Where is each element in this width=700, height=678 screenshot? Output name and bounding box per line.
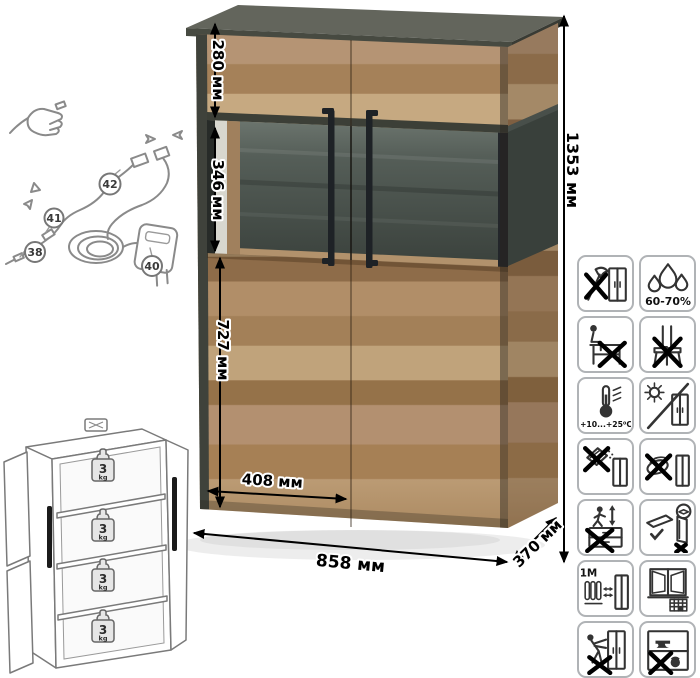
no-overload-icon [643,625,693,675]
load-schematic: 3 kg [0,415,192,678]
connect-arrow-icon [31,183,40,192]
connect-arrow-icon [146,135,155,143]
svg-text:60-70%: 60-70% [645,294,691,307]
care-icon-no-abrasive-cleaners [577,438,634,495]
care-icon-humidity-range: 60-70% [639,255,696,312]
dimension-height: 1353 мм [563,132,582,208]
transport-orientation-icon [643,503,693,553]
dimension-upper-height: 280 мм [209,39,227,100]
care-icon-heat-source-distance: ≥1М [577,560,634,617]
thermometer-icon: +10...+25⁰C [581,381,631,431]
care-icon-transport-flat-only [639,499,696,556]
care-icon-no-wet-cleaning [639,438,696,495]
care-icon-avoid-direct-sunlight [639,377,696,434]
care-icon-no-climbing [577,499,634,556]
svg-text:≥1М: ≥1М [581,567,597,579]
cabinet-front [196,34,508,528]
svg-text:+10...+25⁰C: +10...+25⁰C [581,419,631,428]
cable-coil [69,231,123,263]
care-icon-temperature-range: +10...+25⁰C [577,377,634,434]
left-door-handle [328,110,335,266]
wiring-diagram: 38 40 41 42 [0,95,200,295]
no-standing-icon [643,320,693,370]
bracket-detail [85,419,107,431]
svg-text:40: 40 [144,260,160,273]
schematic-left-handle [47,506,52,568]
sun-slash-icon [643,381,693,431]
care-icon-no-overloading [639,621,696,678]
water-drops-icon: 60-70% [643,259,693,309]
svg-text:42: 42 [102,178,117,191]
glass-display-section [207,120,508,267]
care-icon-ventilate-room [639,560,696,617]
radiator-distance-icon: ≥1М [581,564,631,614]
strip-connector [131,154,148,168]
connect-arrow-icon [24,200,32,209]
no-sitting-icon [581,320,631,370]
cabinet-rendering: 280 мм 346 мм 727 мм 408 мм 858 мм 370 м… [185,0,585,578]
care-icon-no-pushing [577,621,634,678]
plug-connector [154,147,169,160]
schematic-right-handle [172,477,177,551]
open-left-door-upper [4,452,30,566]
care-icon-no-sitting [577,316,634,373]
open-left-door-lower [7,561,33,673]
care-icons-grid: 60-70% +1 [577,255,696,678]
no-abrasive-icon [581,442,631,492]
furniture-spec-sheet: 280 мм 346 мм 727 мм 408 мм 858 мм 370 м… [0,0,700,678]
care-icon-no-sharp-tools [577,255,634,312]
svg-text:38: 38 [27,246,42,259]
no-climbing-icon [581,503,631,553]
right-door-handle [366,112,373,268]
dimension-display-height: 346 мм [209,159,227,220]
svg-text:41: 41 [46,212,61,225]
care-icon-no-standing [639,316,696,373]
dimension-door-width: 408 мм [241,470,303,492]
axe-crossed-icon [581,259,631,309]
hand-icon [10,101,66,135]
dimension-lower-height: 727 мм [214,319,232,380]
no-wet-sponge-icon [643,442,693,492]
connect-arrow-icon [173,131,182,139]
cabinet-side-panel [508,23,558,528]
open-window-icon [643,564,693,614]
no-pushing-icon [581,625,631,675]
